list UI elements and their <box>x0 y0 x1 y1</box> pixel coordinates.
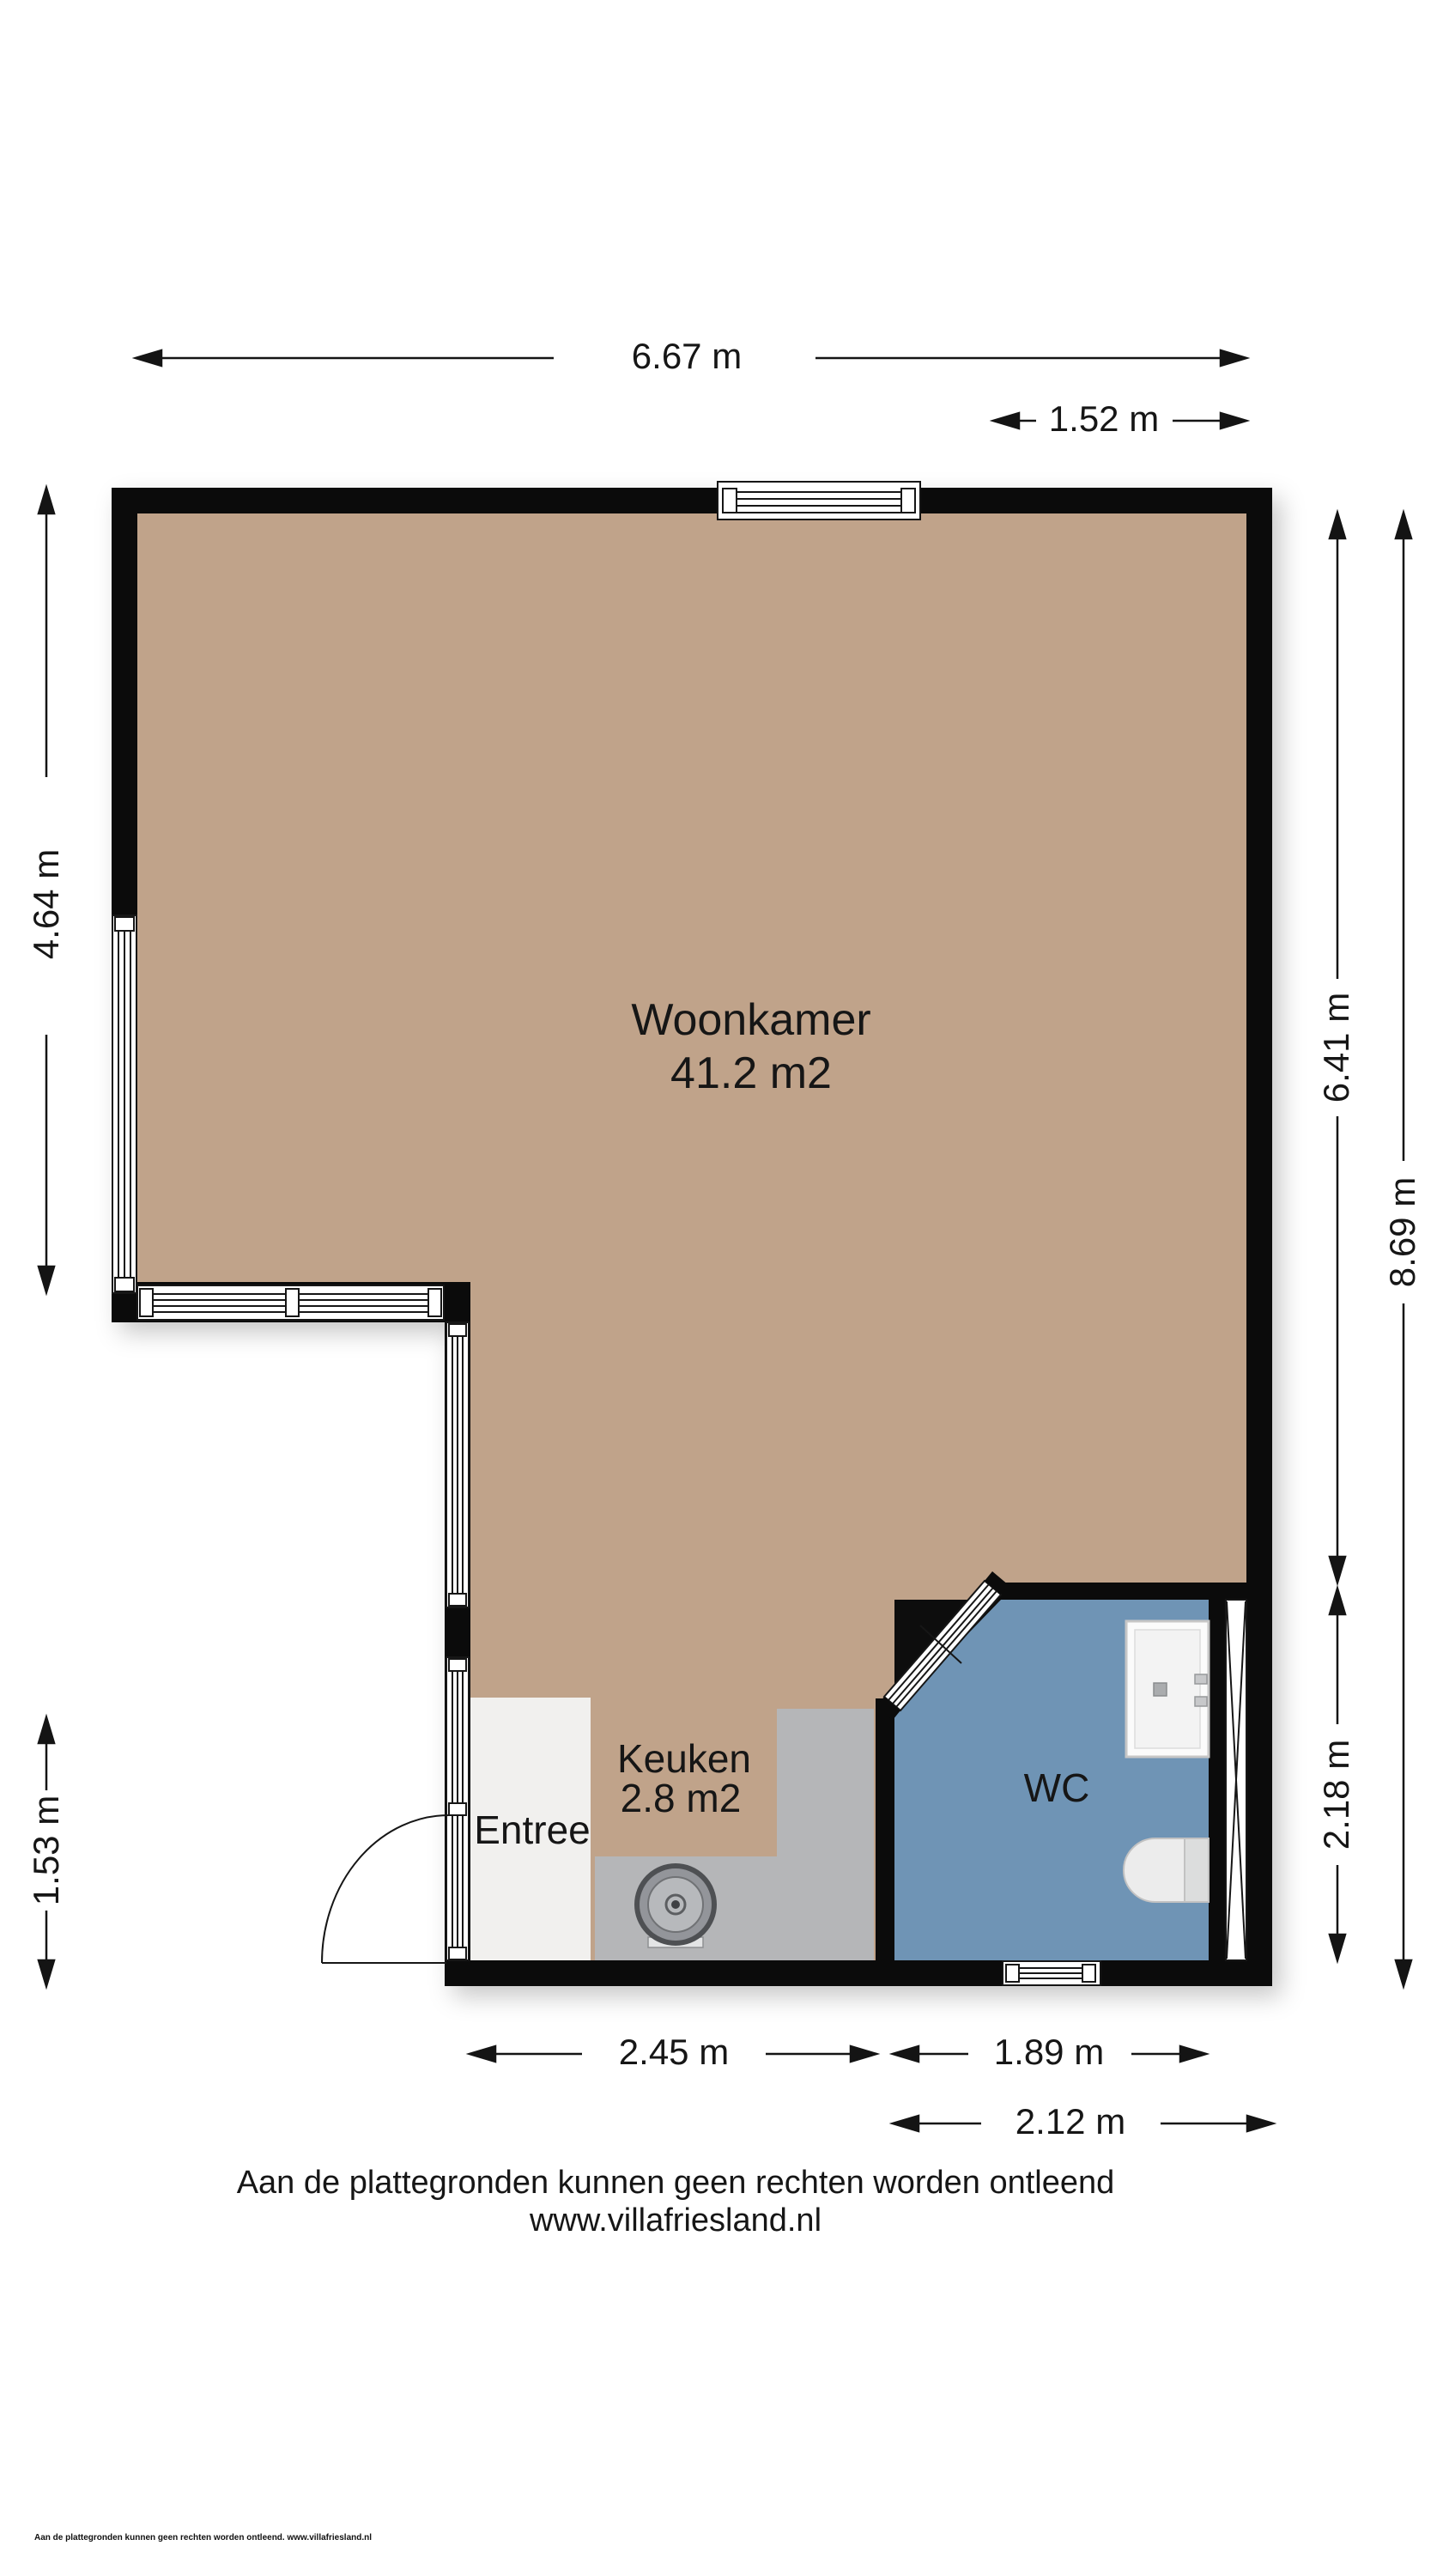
arrow-up-icon <box>1330 513 1345 538</box>
room-label-entree: Entree <box>474 1810 591 1850</box>
dim-right-wc: 2.18 m <box>1319 1740 1355 1850</box>
window-top <box>718 482 920 519</box>
fine-print: Aan de plattegronden kunnen geen rechten… <box>34 2533 372 2543</box>
window-step <box>137 1285 444 1320</box>
dim-left-lower: 1.53 m <box>28 1795 64 1905</box>
kitchen-sink <box>637 1866 714 1947</box>
dim-left-upper: 4.64 m <box>28 849 64 959</box>
arrow-left-icon <box>993 413 1019 428</box>
wall-wc-west <box>876 1698 894 1960</box>
toilet <box>1124 1838 1209 1902</box>
duct-shaft <box>1226 1600 1246 1960</box>
arrow-up-icon <box>39 1717 54 1743</box>
room-label-wc: WC <box>1024 1768 1090 1807</box>
dim-top-right: 1.52 m <box>1049 401 1159 437</box>
dim-right-woonkamer: 6.41 m <box>1319 993 1355 1103</box>
arrow-down-icon <box>1330 1935 1345 1960</box>
window-entree-upper <box>446 1322 469 1607</box>
wall-right <box>1246 488 1272 1986</box>
dim-bottom-wc-inner: 1.89 m <box>994 2034 1104 2070</box>
dim-right-total: 8.69 m <box>1385 1177 1421 1287</box>
footer-disclaimer: Aan de plattegronden kunnen geen rechten… <box>237 2166 1115 2199</box>
room-label-woonkamer: Woonkamer <box>631 998 870 1042</box>
arrow-up-icon <box>1330 1589 1345 1614</box>
window-left <box>112 915 136 1293</box>
room-area-keuken: 2.8 m2 <box>621 1778 742 1818</box>
arrow-left-icon <box>893 2046 919 2062</box>
arrow-right-icon <box>1221 350 1246 366</box>
room-label-keuken: Keuken <box>617 1739 751 1778</box>
dim-bottom-wc-outer: 2.12 m <box>1016 2104 1125 2140</box>
wall-wc-top <box>996 1583 1246 1600</box>
arrow-right-icon <box>1180 2046 1206 2062</box>
entree-door-swing <box>322 1815 449 1963</box>
arrow-up-icon <box>39 488 54 513</box>
arrow-left-icon <box>893 2116 919 2131</box>
floorplan-page: 6.67 m 1.52 m 4.64 m 1.53 m 6.41 m 2.18 … <box>0 0 1449 2576</box>
arrow-right-icon <box>1221 413 1246 428</box>
wall-bottom <box>445 1960 1272 1986</box>
arrow-right-icon <box>851 2046 876 2062</box>
arrow-right-icon <box>1247 2116 1273 2131</box>
arrow-down-icon <box>1330 1557 1345 1583</box>
arrow-up-icon <box>1396 513 1411 538</box>
footer-website: www.villafriesland.nl <box>530 2204 822 2237</box>
washbasin <box>1126 1621 1209 1757</box>
arrow-down-icon <box>1396 1960 1411 1986</box>
arrow-down-icon <box>39 1960 54 1986</box>
arrow-down-icon <box>39 1267 54 1292</box>
room-area-woonkamer: 41.2 m2 <box>670 1051 832 1096</box>
dim-top-total: 6.67 m <box>632 338 742 374</box>
window-bottom <box>1003 1961 1100 1985</box>
wall-top <box>112 488 1272 513</box>
arrow-left-icon <box>136 350 161 366</box>
window-entree-lower <box>446 1657 469 1960</box>
wall-wc-east-strip <box>1209 1600 1226 1960</box>
arrow-left-icon <box>470 2046 495 2062</box>
dim-bottom-keuken: 2.45 m <box>619 2034 729 2070</box>
